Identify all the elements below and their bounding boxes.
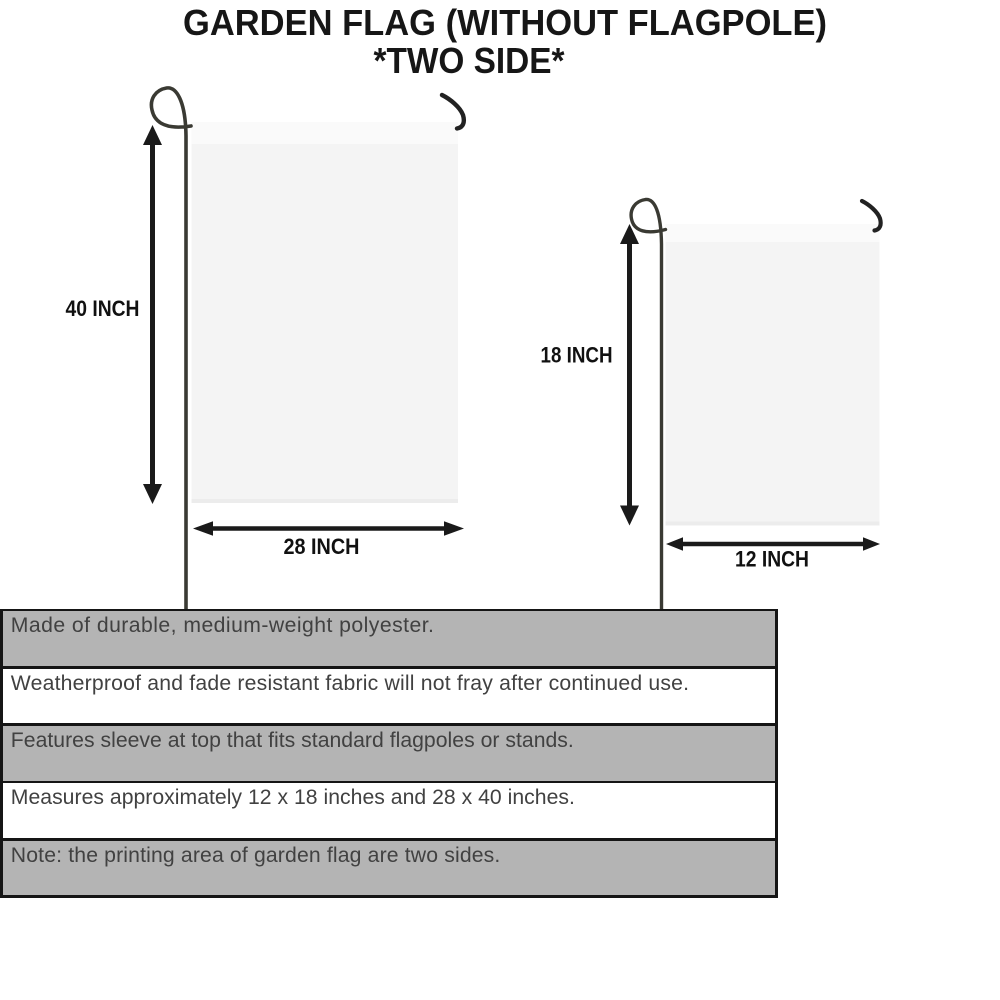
svg-text:12 INCH: 12 INCH <box>735 547 809 572</box>
svg-text:40 INCH: 40 INCH <box>66 296 140 321</box>
svg-text:28 INCH: 28 INCH <box>284 534 360 559</box>
svg-text:*TWO SIDE*: *TWO SIDE* <box>374 40 565 81</box>
svg-text:18 INCH: 18 INCH <box>541 343 613 368</box>
svg-text:GARDEN FLAG (WITHOUT FLAGPOLE): GARDEN FLAG (WITHOUT FLAGPOLE) <box>183 2 827 43</box>
